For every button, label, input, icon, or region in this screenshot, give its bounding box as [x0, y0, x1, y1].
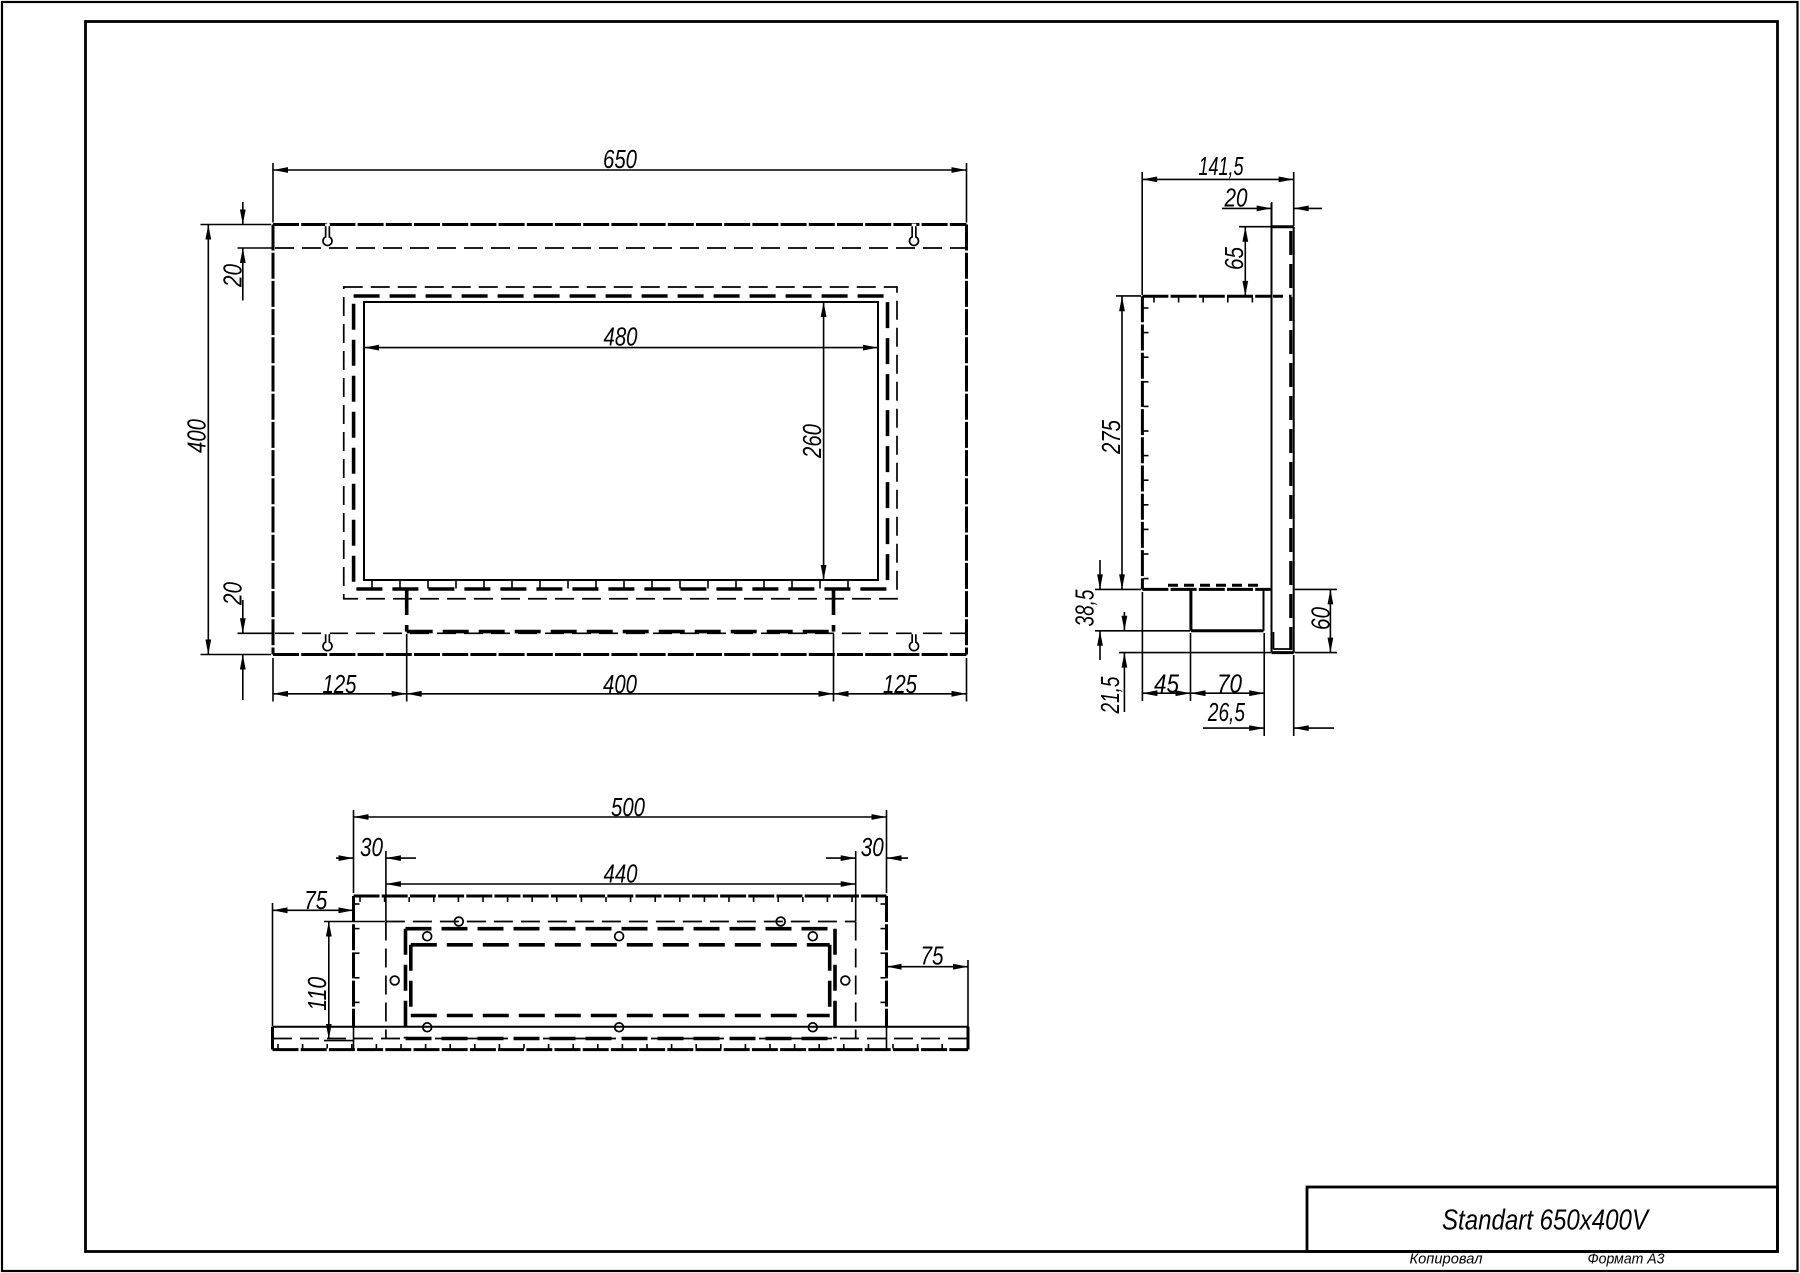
- svg-text:Standart 650x400V: Standart 650x400V: [1442, 1205, 1650, 1237]
- svg-text:275: 275: [1096, 420, 1126, 455]
- svg-text:30: 30: [360, 832, 383, 862]
- svg-text:26,5: 26,5: [1207, 697, 1245, 727]
- svg-text:400: 400: [181, 419, 211, 453]
- svg-text:21,5: 21,5: [1095, 676, 1125, 714]
- svg-text:141,5: 141,5: [1199, 151, 1244, 181]
- svg-text:20: 20: [218, 582, 248, 606]
- svg-text:440: 440: [604, 858, 638, 888]
- svg-text:125: 125: [323, 669, 357, 699]
- svg-text:75: 75: [921, 941, 944, 971]
- svg-text:70: 70: [1217, 668, 1242, 698]
- svg-text:38,5: 38,5: [1070, 589, 1100, 626]
- svg-text:400: 400: [603, 669, 637, 699]
- svg-text:Копировал: Копировал: [1410, 1251, 1484, 1268]
- svg-text:65: 65: [1219, 247, 1249, 270]
- svg-text:60: 60: [1305, 607, 1335, 630]
- svg-text:Формат А3: Формат А3: [1588, 1251, 1666, 1268]
- svg-text:20: 20: [1224, 183, 1248, 213]
- svg-text:75: 75: [304, 885, 327, 915]
- svg-text:500: 500: [611, 792, 645, 822]
- svg-text:260: 260: [797, 424, 827, 459]
- svg-text:125: 125: [883, 669, 917, 699]
- svg-text:30: 30: [861, 832, 884, 862]
- svg-text:110: 110: [302, 976, 332, 1010]
- svg-text:650: 650: [603, 144, 637, 174]
- svg-text:45: 45: [1154, 668, 1179, 698]
- svg-text:20: 20: [218, 264, 248, 288]
- svg-text:480: 480: [604, 322, 638, 352]
